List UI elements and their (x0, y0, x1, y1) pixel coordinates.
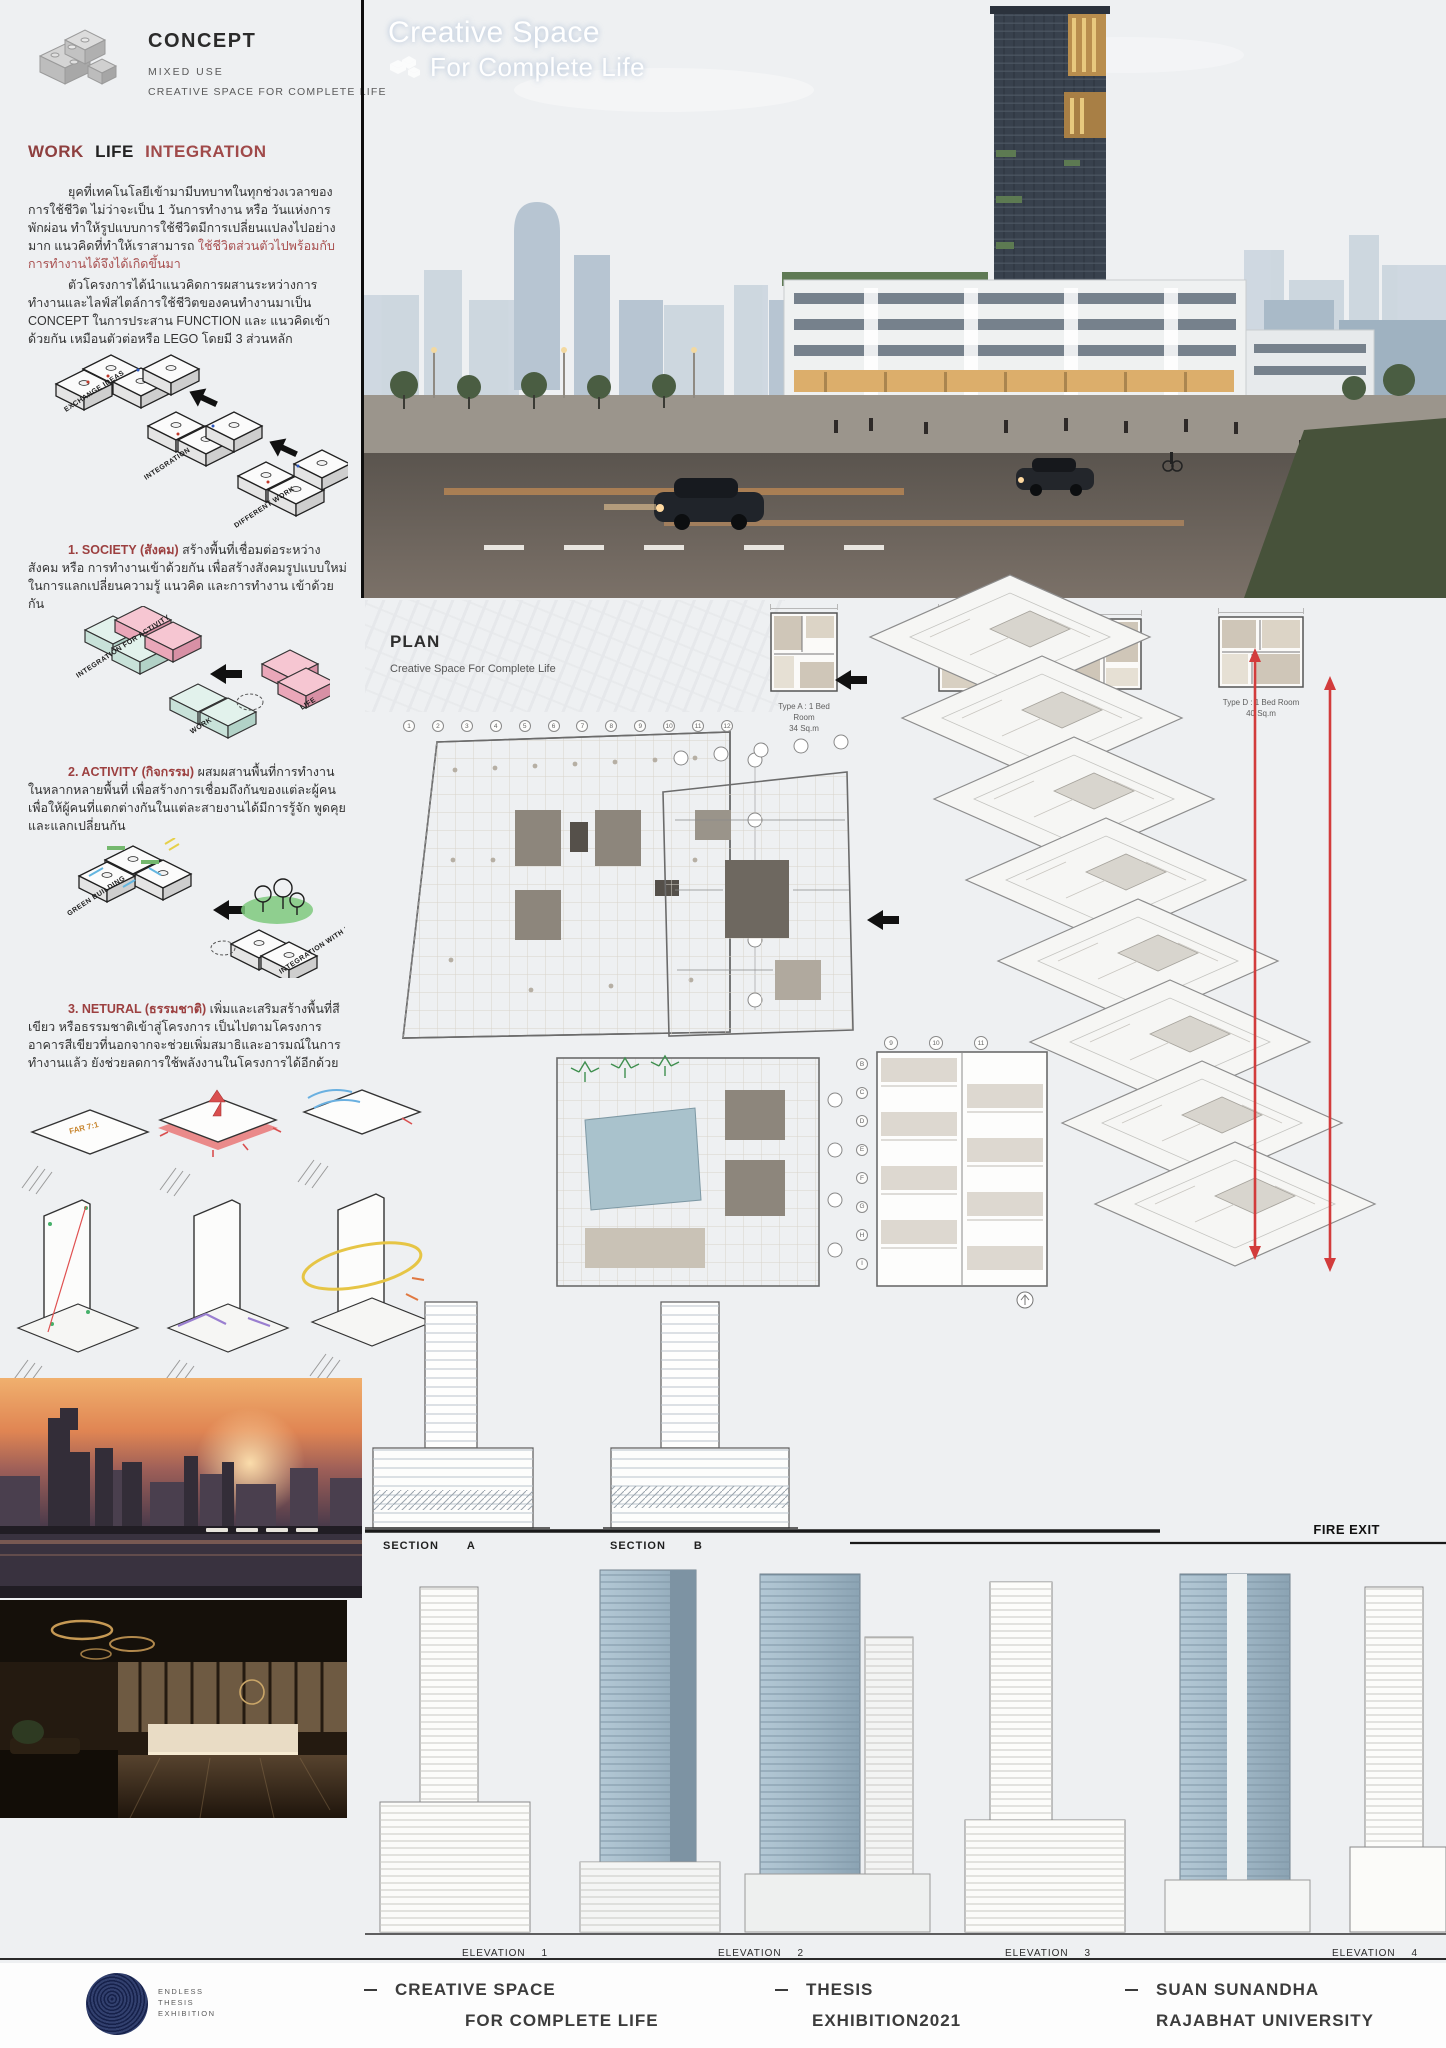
grid-bubble: 9 (634, 720, 646, 732)
dash-icon (775, 1989, 788, 1991)
grid-bubble: 10 (663, 720, 675, 732)
plan4-grid-bubbles-left: BCDEFGHI (856, 1058, 868, 1270)
footer-thesis-line1: THESIS (806, 1980, 961, 2000)
elevation-tower-3 (745, 1574, 930, 1932)
activity-lead: 2. ACTIVITY (กิจกรรม) (68, 765, 194, 779)
lego-cluster-work (170, 684, 256, 738)
footer-logo-text: ENDLESSTHESISEXHIBITION (158, 1986, 216, 2019)
elevation-tower-4 (965, 1582, 1125, 1932)
footer-item-thesis: THESIS EXHIBITION2021 (775, 1980, 961, 2031)
section-label-a: SECTIONA (383, 1540, 476, 1552)
lego-cluster-integration (148, 412, 262, 466)
intro-paragraph-1: ยุคที่เทคโนโลยีเข้ามามีบทบาทในทุกช่วงเวล… (28, 183, 346, 273)
footer-rule (0, 1958, 1446, 1960)
section-label-b: SECTIONB (610, 1540, 703, 1552)
arrow-icon (210, 664, 242, 684)
hero-lego-icon (386, 52, 422, 80)
podium-building (782, 272, 1374, 396)
heading-life: LIFE (95, 142, 134, 161)
grid-bubble: 10 (929, 1036, 943, 1050)
natural-lead: 3. NETURAL (ธรรมชาติ) (68, 1002, 206, 1016)
lobby-seating (0, 1738, 118, 1818)
grid-bubble: I (856, 1258, 868, 1270)
natural-paragraph: 3. NETURAL (ธรรมชาติ) เพิ่มและเสริมสร้าง… (28, 1000, 348, 1072)
heading-integration: INTEGRATION (145, 142, 266, 161)
concept-subtitle-2: CREATIVE SPACE FOR COMPLETE LIFE (148, 86, 387, 98)
hero-title-line1: Creative Space (388, 16, 600, 50)
plant (12, 1720, 44, 1744)
sketch-circle (237, 694, 263, 710)
section-a-drawing (365, 1302, 550, 1528)
elevation-tower-2 (580, 1570, 720, 1932)
arrow-icon (213, 900, 245, 920)
elevation-tower-5 (1165, 1574, 1310, 1932)
footer-item-university: SUAN SUNANDHA RAJABHAT UNIVERSITY (1125, 1980, 1374, 2031)
floor-plan-4 (877, 1052, 1047, 1308)
fire-exit-label: FIRE EXIT (1280, 1522, 1380, 1537)
massing-setback-plate (158, 1090, 281, 1196)
grid-bubble: 3 (461, 720, 473, 732)
footer-logo-line: ENDLESS (158, 1986, 216, 1997)
photo-rooftop-pool (0, 1378, 362, 1598)
concept-subtitle-1: MIXED USE (148, 66, 224, 78)
section-b-drawing (603, 1302, 798, 1528)
grid-bubble: 7 (576, 720, 588, 732)
grid-bubble: 5 (519, 720, 531, 732)
grid-bubble: B (856, 1058, 868, 1070)
dash-icon (1125, 1989, 1138, 1991)
lego-diagram-concept: EXCHANGE IDEAS INTEGRATION DIFFERENT WOR… (28, 350, 348, 550)
work-life-integration-heading: WORK LIFE INTEGRATION (28, 142, 267, 162)
activity-paragraph: 2. ACTIVITY (กิจกรรม) ผสมผสานพื้นที่การท… (28, 763, 348, 835)
grid-bubble: G (856, 1201, 868, 1213)
lego-cluster-life (262, 650, 330, 708)
society-lead: 1. SOCIETY (สังคม) (68, 543, 179, 557)
footer-logo-line: THESIS (158, 1997, 216, 2008)
lego-diagram-natural: GREEN BUILDING INTEGRATION WITH NATURAL (45, 838, 345, 978)
plan1-grid-bubbles: 123456789101112 (403, 720, 733, 732)
plan4-grid-bubbles-top: 91011 (884, 1036, 988, 1050)
plaza (364, 395, 1446, 453)
grid-bubble: 4 (490, 720, 502, 732)
footer-university-line1: SUAN SUNANDHA (1156, 1980, 1374, 2000)
grid-bubble: 2 (432, 720, 444, 732)
grid-bubble: F (856, 1172, 868, 1184)
concept-lego-icon (30, 22, 125, 92)
massing-far-plate: FAR 7:1 (22, 1110, 148, 1194)
intro-paragraph-2: ตัวโครงการได้นำแนวคิดการผสานระหว่างการทำ… (28, 276, 346, 348)
endless-thesis-logo-icon (86, 1973, 148, 2035)
massing-tower-purple (164, 1200, 288, 1378)
floor-plan-3 (557, 1056, 842, 1286)
footer-project-line2: FOR COMPLETE LIFE (465, 2011, 659, 2031)
lego-cluster-different-work (238, 450, 348, 516)
lego-diagram-society: INTEGRATION FOR ACTIVITY WORK LIFE (50, 606, 330, 746)
grid-bubble: D (856, 1115, 868, 1127)
concept-title: CONCEPT (148, 30, 256, 53)
grid-bubble: 1 (403, 720, 415, 732)
dash-icon (364, 1989, 377, 1991)
elevation-tower-1 (380, 1587, 530, 1932)
grid-bubble: H (856, 1229, 868, 1241)
thesis-poster: CONCEPT MIXED USE CREATIVE SPACE FOR COM… (0, 0, 1446, 2048)
main-tower (990, 6, 1110, 302)
elevation-tower-6 (1350, 1587, 1446, 1932)
footer-item-project: CREATIVE SPACE FOR COMPLETE LIFE (364, 1980, 659, 2031)
diagram1-label-integration: INTEGRATION (143, 447, 191, 482)
footer-project-line1: CREATIVE SPACE (395, 1980, 659, 2000)
grid-bubble: 8 (605, 720, 617, 732)
grid-bubble: 11 (974, 1036, 988, 1050)
elevations-drawing (365, 1562, 1446, 1947)
floorplans-drawing (365, 560, 1446, 1545)
grid-bubble: 6 (548, 720, 560, 732)
grid-bubble: 9 (884, 1036, 898, 1050)
footer-university-line2: RAJABHAT UNIVERSITY (1156, 2011, 1374, 2031)
society-paragraph: 1. SOCIETY (สังคม) สร้างพื้นที่เชื่อมต่อ… (28, 541, 348, 613)
photo-lobby (0, 1600, 347, 1818)
hero-title-line2: For Complete Life (430, 52, 645, 83)
footer-thesis-line2: EXHIBITION2021 (812, 2011, 961, 2031)
grid-bubble: 12 (721, 720, 733, 732)
grid-bubble: C (856, 1087, 868, 1099)
massing-tower-green (12, 1200, 138, 1378)
hero-left-border (361, 0, 364, 598)
footer-logo-line: EXHIBITION (158, 2008, 216, 2019)
hero-render: Creative Space For Complete Life (364, 0, 1446, 598)
grid-bubble: E (856, 1144, 868, 1156)
heading-work: WORK (28, 142, 84, 161)
grid-bubble: 11 (692, 720, 704, 732)
